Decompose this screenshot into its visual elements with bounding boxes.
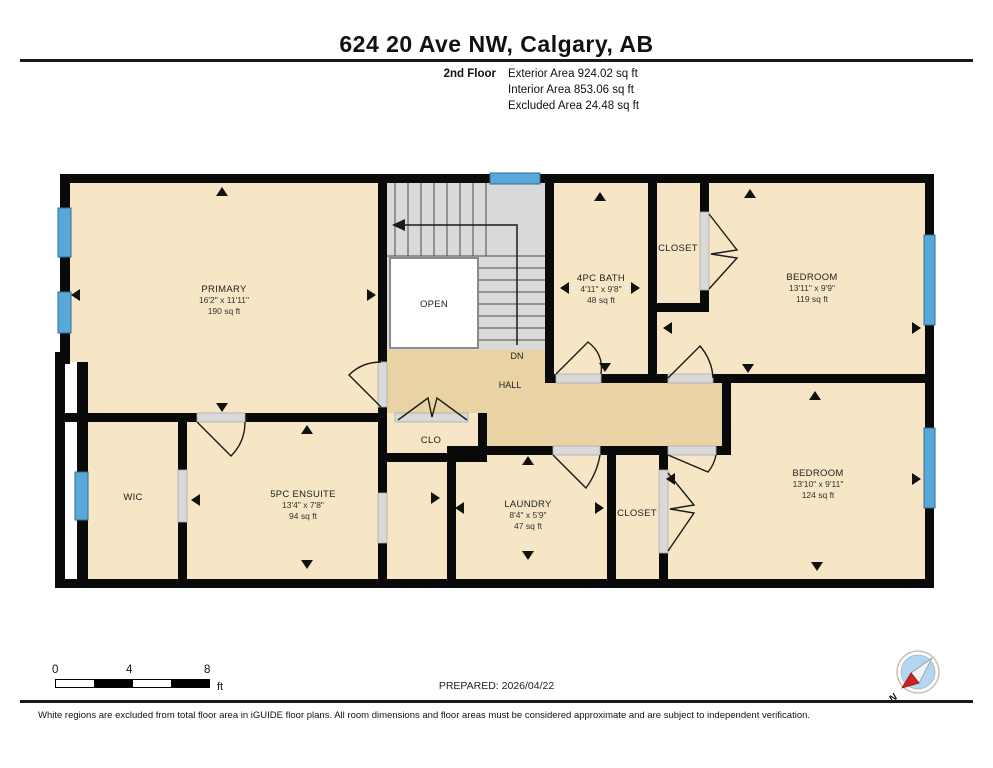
scale-tick-4: 4 — [126, 664, 132, 676]
svg-text:94 sq ft: 94 sq ft — [289, 511, 318, 521]
room-label-clo: CLO — [421, 435, 441, 446]
excluded-white-gap — [65, 362, 77, 579]
svg-text:PRIMARY: PRIMARY — [201, 284, 247, 295]
window-bedroom-1 — [924, 235, 935, 325]
svg-text:13'4" x 7'8": 13'4" x 7'8" — [282, 500, 324, 510]
stairs-dn-label: DN — [511, 351, 524, 361]
svg-text:13'10" x 9'11": 13'10" x 9'11" — [793, 479, 844, 489]
svg-text:13'11" x 9'9": 13'11" x 9'9" — [789, 283, 835, 293]
room-label-closet2: CLOSET — [617, 508, 657, 519]
svg-text:48 sq ft: 48 sq ft — [587, 295, 616, 305]
staircase — [387, 183, 545, 350]
window-stairs — [490, 173, 540, 184]
scale-tick-0: 0 — [52, 664, 58, 676]
hall-label: HALL — [499, 380, 522, 390]
disclaimer-text: White regions are excluded from total fl… — [38, 710, 968, 721]
svg-text:190 sq ft: 190 sq ft — [208, 306, 241, 316]
svg-text:8'4" x 5'9": 8'4" x 5'9" — [509, 510, 546, 520]
room-label-closet1: CLOSET — [658, 243, 698, 254]
floorplan-drawing: PRIMARY 16'2" x 11'11" 190 sq ft 4PC BAT… — [0, 0, 993, 768]
window-primary-2 — [58, 292, 71, 333]
svg-text:BEDROOM: BEDROOM — [786, 272, 837, 283]
svg-text:119 sq ft: 119 sq ft — [796, 294, 829, 304]
svg-text:47 sq ft: 47 sq ft — [514, 521, 543, 531]
svg-text:5PC ENSUITE: 5PC ENSUITE — [270, 489, 336, 500]
svg-text:4'11" x 9'8": 4'11" x 9'8" — [580, 284, 621, 294]
svg-text:4PC BATH: 4PC BATH — [577, 273, 625, 284]
prepared-date: PREPARED: 2026/04/22 — [0, 680, 993, 692]
scale-tick-8: 8 — [204, 664, 210, 676]
open-label: OPEN — [420, 299, 448, 310]
floorplan-page: 624 20 Ave NW, Calgary, AB 2nd Floor Ext… — [0, 0, 993, 768]
svg-text:LAUNDRY: LAUNDRY — [504, 499, 552, 510]
svg-text:16'2" x 11'11": 16'2" x 11'11" — [199, 295, 249, 305]
footer-divider — [20, 700, 973, 703]
window-primary-1 — [58, 208, 71, 257]
svg-text:BEDROOM: BEDROOM — [792, 468, 843, 479]
room-label-wic: WIC — [123, 492, 142, 503]
window-wic — [75, 472, 88, 520]
window-bedroom-2 — [924, 428, 935, 508]
svg-text:124 sq ft: 124 sq ft — [802, 490, 835, 500]
